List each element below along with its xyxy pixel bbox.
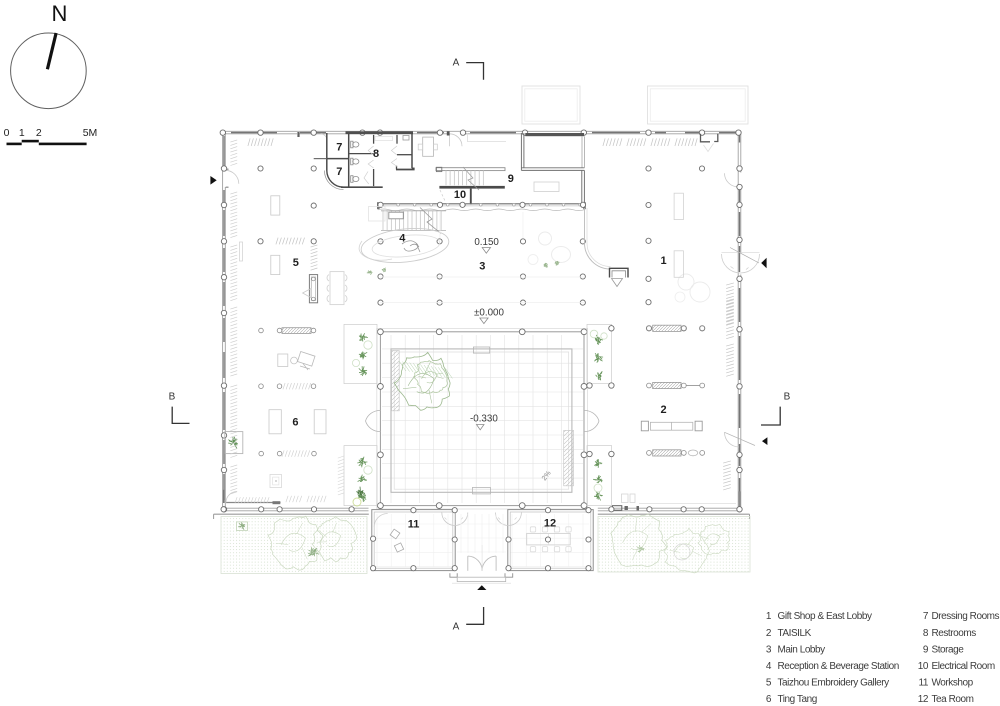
svg-text:1: 1 (661, 255, 667, 267)
svg-text:5M: 5M (83, 127, 98, 139)
svg-text:10: 10 (918, 661, 929, 672)
svg-text:12: 12 (918, 694, 929, 705)
svg-text:Reception & Beverage Station: Reception & Beverage Station (778, 661, 899, 672)
svg-text:10: 10 (454, 189, 466, 201)
svg-text:3: 3 (766, 644, 772, 655)
svg-text:9: 9 (923, 644, 929, 655)
svg-text:Main Lobby: Main Lobby (778, 644, 826, 655)
svg-text:1: 1 (19, 127, 25, 139)
svg-text:6: 6 (292, 417, 298, 429)
svg-text:2: 2 (766, 628, 772, 639)
svg-text:7: 7 (336, 166, 342, 178)
svg-text:Ting Tang: Ting Tang (778, 694, 817, 705)
svg-text:9: 9 (508, 173, 514, 185)
svg-text:Taizhou Embroidery Gallery: Taizhou Embroidery Gallery (778, 677, 890, 688)
svg-text:12: 12 (544, 518, 556, 530)
svg-text:Storage: Storage (932, 644, 965, 655)
svg-text:A: A (453, 58, 460, 69)
svg-text:Gift Shop & East Lobby: Gift Shop & East Lobby (778, 611, 873, 622)
svg-text:Restrooms: Restrooms (932, 628, 977, 639)
svg-text:±0.000: ±0.000 (474, 307, 504, 318)
svg-text:4: 4 (766, 661, 772, 672)
svg-text:-0.330: -0.330 (470, 413, 498, 424)
svg-text:5: 5 (293, 257, 299, 269)
svg-text:0.150: 0.150 (474, 237, 499, 248)
svg-text:6: 6 (766, 694, 772, 705)
svg-text:11: 11 (919, 677, 929, 688)
svg-text:7: 7 (923, 611, 929, 622)
svg-text:4: 4 (399, 233, 406, 245)
svg-text:Dressing Rooms: Dressing Rooms (932, 611, 1000, 622)
svg-text:N: N (52, 1, 68, 26)
svg-text:8: 8 (373, 148, 379, 160)
svg-text:Electrical Room: Electrical Room (932, 661, 995, 672)
svg-text:Workshop: Workshop (932, 677, 974, 688)
svg-text:0: 0 (4, 127, 10, 139)
svg-text:8: 8 (923, 628, 929, 639)
svg-text:A: A (453, 622, 460, 633)
svg-text:B: B (169, 392, 176, 403)
svg-text:1: 1 (766, 611, 772, 622)
svg-text:TAISILK: TAISILK (778, 628, 812, 639)
svg-text:B: B (784, 392, 791, 403)
svg-text:Tea Room: Tea Room (932, 694, 974, 705)
svg-text:3: 3 (479, 260, 485, 272)
svg-text:2: 2 (660, 404, 666, 416)
svg-text:11: 11 (408, 519, 420, 531)
svg-text:5: 5 (766, 677, 772, 688)
svg-text:7: 7 (336, 142, 342, 154)
svg-text:2: 2 (36, 127, 42, 139)
